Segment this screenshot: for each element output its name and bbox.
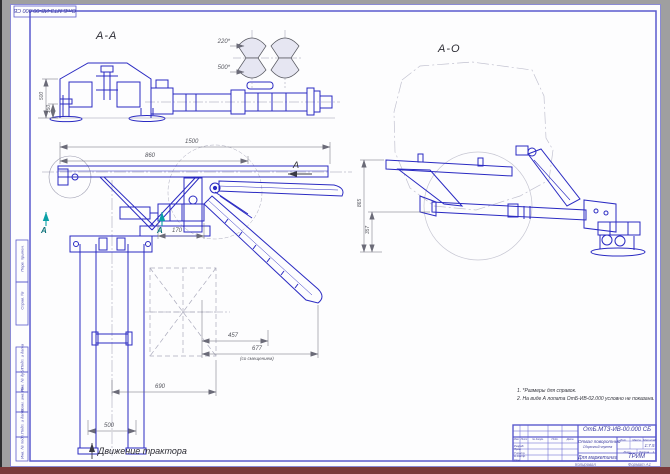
title-header-docnum: № докум. [528,438,548,441]
title-purpose: Для маркетинга [578,455,617,461]
title-org: ТРИМ [617,454,656,460]
title-header-list: Лист [520,438,528,441]
margin-label-perv-primen: Перв. примен. [20,237,25,281]
window-edge-bottom [0,467,670,474]
margin-label-sprav: Справ. № [20,279,25,323]
dim-ao-ground: 357 [365,220,371,240]
dim-blade-offset-2: 677 [252,346,262,352]
view-ao-label: А-О [438,43,461,55]
note-line-2: 2. На виде А лопата ОтБ-ИВ-02.000 условн… [517,396,655,402]
dim-overall-width: 1500 [185,139,198,145]
dim-aa-height: 500 [39,86,45,106]
section-aa-label: А-А [96,30,117,42]
title-sheets-value: 1 [651,450,656,454]
title-role-utv: Утв. [514,458,520,462]
dim-disc-min: 220* [206,39,230,45]
drawing-linework [0,0,670,474]
movement-label: Движение трактора [98,446,187,456]
title-scale-label: Масштаб [643,438,656,442]
dim-blade-offset-1: 457 [228,333,238,339]
drawing-workspace: А-А А-О А А А Движение трактора 1500 860… [0,0,670,474]
title-sheet-label: Лист [617,450,637,454]
footer-format-label: Формат А1 [628,462,651,467]
dim-aa-ground: 150 [46,99,52,119]
cut-arrow-label-left: А [41,226,47,235]
dim-rail-gap: 500 [104,423,114,429]
title-header-data: Дата [562,438,578,441]
dim-blade-offset-note: (со смещением) [240,356,274,361]
footer-copied-label: Копировал [575,462,596,467]
dim-disc-max: 500* [206,65,230,71]
title-lit-label: Лит. [617,438,630,442]
window-edge-left [0,0,2,474]
title-sheets-label: Листов [637,450,651,454]
margin-label-inv-podl: Инв. № подл. [20,425,25,469]
title-designation: ОтБ.МТЗ-ИВ-00.000 СБ [578,427,656,433]
dim-track: 690 [155,384,165,390]
title-part-name: Отвал поворотный [578,439,617,444]
note-line-1: 1. *Размеры для справок. [517,388,576,394]
title-header-podp: Подп. [548,438,562,441]
view-arrow-label: А [293,160,299,170]
dim-ao-height: 865 [357,193,363,213]
title-header-izm: Изм. [513,438,520,441]
title-doc-type: Сборочный чертеж [578,445,617,449]
title-mass-label: Масса [630,438,643,442]
dim-frame-width: 860 [145,153,155,159]
cut-arrow-label-right: А [157,226,163,235]
corner-stamp-designation: ОтБ.МТЗ-ИВ-00.000 СБ [14,7,76,13]
dim-cylinder-stroke: 170 [172,228,182,234]
title-scale-value: 1:7.5 [643,443,656,448]
